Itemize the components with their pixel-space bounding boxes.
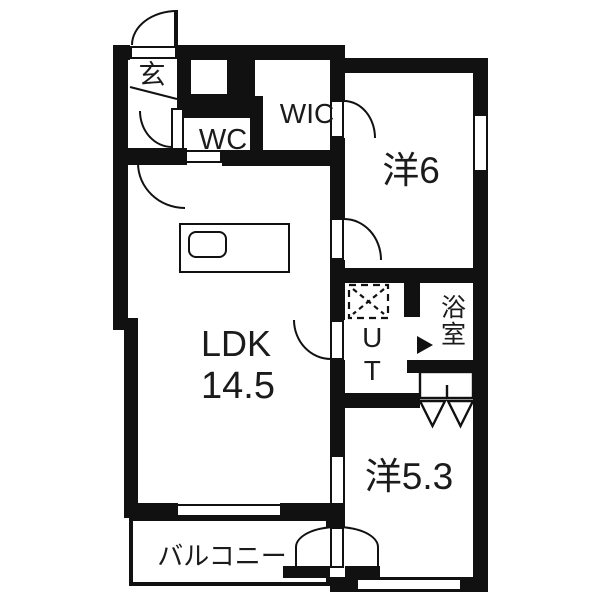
wall-ut-bath-divider bbox=[404, 283, 420, 317]
window-bedroom53 bbox=[356, 578, 462, 591]
room-label-ldk-name: LDK bbox=[176, 324, 296, 364]
ut-door-leaf bbox=[330, 320, 344, 360]
room-label-balcony: バルコニー bbox=[142, 542, 302, 571]
hall-ldk-door-arc bbox=[137, 163, 185, 209]
bedroom6-door-leaf bbox=[330, 218, 344, 260]
entrance-door-leaf bbox=[174, 10, 178, 46]
ut-door-arc bbox=[293, 320, 331, 360]
closet-icon bbox=[420, 372, 473, 426]
room-label-ut: UT bbox=[356, 318, 384, 392]
wall-shoebox-right bbox=[228, 58, 255, 96]
wall-left-lower bbox=[124, 318, 138, 518]
room-label-genkan: 玄 bbox=[132, 61, 172, 91]
wc-door-arc bbox=[139, 111, 172, 148]
wall-bath-bottom bbox=[407, 360, 488, 373]
floorplan-canvas: 玄 WC WIC 洋6 LDK 14.5 UT 浴室 洋5.3 バルコニー bbox=[0, 0, 600, 600]
room-label-wc: WC bbox=[193, 125, 253, 157]
wall-ldk-bottom-a bbox=[124, 503, 178, 518]
bedroom6-door-arc bbox=[344, 218, 382, 260]
wall-mid-b4 bbox=[330, 360, 345, 455]
room-label-bedroom53: 洋5.3 bbox=[344, 457, 474, 498]
room-label-bedroom6: 洋6 bbox=[361, 151, 461, 192]
wic-door-arc bbox=[344, 100, 376, 138]
kitchen-sink bbox=[188, 231, 227, 258]
wall-ldk-bottom-b bbox=[280, 503, 332, 518]
window-bedroom6 bbox=[473, 114, 488, 172]
bedroom53-door-leaf bbox=[330, 527, 344, 568]
washer-pan-icon bbox=[349, 285, 388, 318]
partition-thin-segment bbox=[330, 455, 345, 505]
wall-top-right bbox=[330, 58, 488, 73]
window-ldk-balcony bbox=[176, 504, 282, 517]
wall-mid-b1 bbox=[330, 58, 345, 100]
wall-bedroom6-bottom bbox=[330, 268, 473, 283]
wall-top-left-stub bbox=[113, 45, 130, 60]
room-label-ldk-size: 14.5 bbox=[178, 366, 298, 408]
room-label-wic: WIC bbox=[275, 99, 339, 130]
wall-left-upper bbox=[113, 45, 128, 330]
wall-ut-bottom bbox=[345, 393, 420, 408]
wall-mid-b2 bbox=[330, 138, 345, 218]
shoe-cabinet bbox=[189, 58, 229, 96]
room-label-bath: 浴室 bbox=[437, 286, 465, 356]
entrance-threshold bbox=[130, 46, 177, 59]
wc-door-leaf bbox=[171, 108, 184, 150]
wall-above-wc bbox=[177, 96, 263, 118]
wall-mid-b6 bbox=[330, 503, 345, 527]
entrance-door-arc bbox=[131, 10, 177, 45]
bath-door-triangle-icon bbox=[417, 336, 433, 354]
